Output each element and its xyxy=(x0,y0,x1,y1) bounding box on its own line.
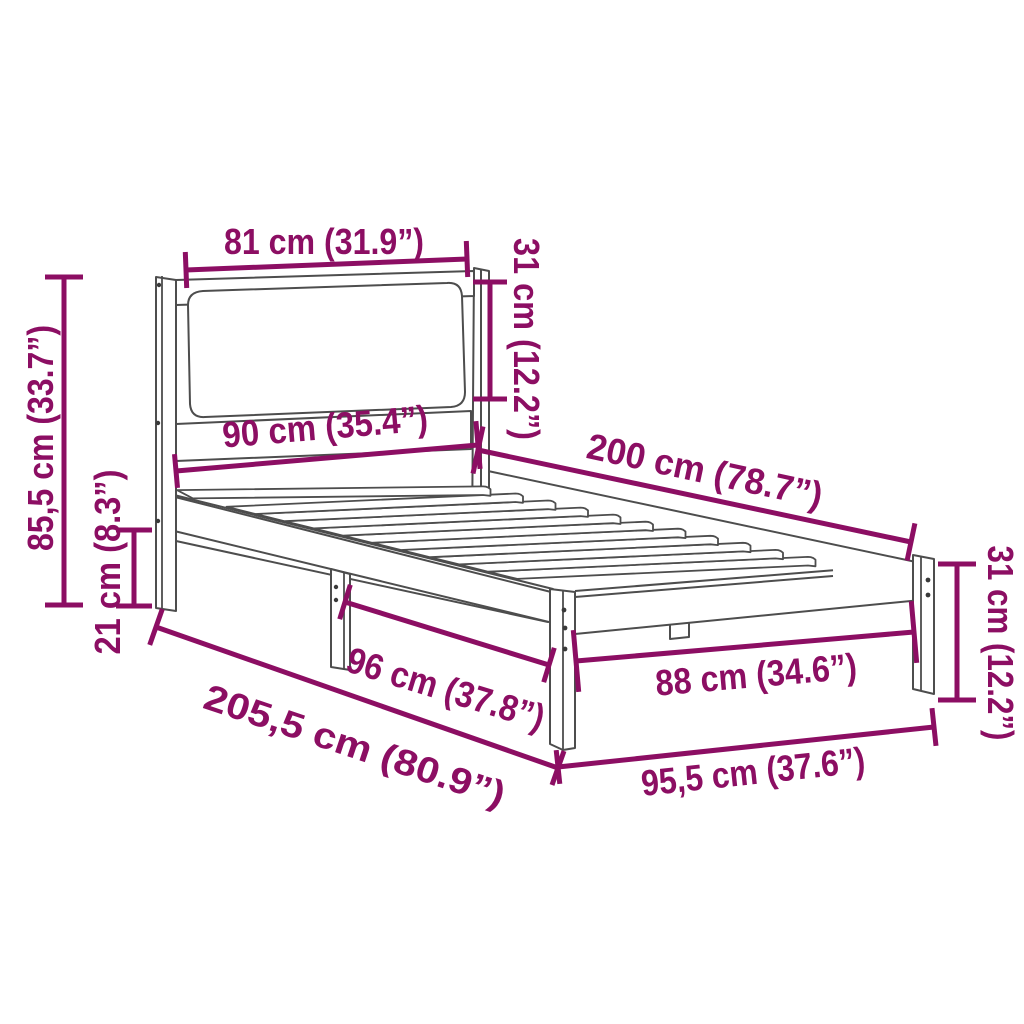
svg-text:85,5 cm (33.7”): 85,5 cm (33.7”) xyxy=(21,325,61,551)
svg-text:31 cm (12.2”): 31 cm (12.2”) xyxy=(505,238,545,440)
svg-text:88 cm (34.6”): 88 cm (34.6”) xyxy=(654,647,859,704)
svg-text:95,5 cm (37.6”): 95,5 cm (37.6”) xyxy=(639,740,867,804)
svg-text:21 cm (8.3”): 21 cm (8.3”) xyxy=(88,470,128,655)
svg-text:31 cm (12.2”): 31 cm (12.2”) xyxy=(979,546,1020,741)
svg-text:81 cm (31.9”): 81 cm (31.9”) xyxy=(224,222,424,262)
